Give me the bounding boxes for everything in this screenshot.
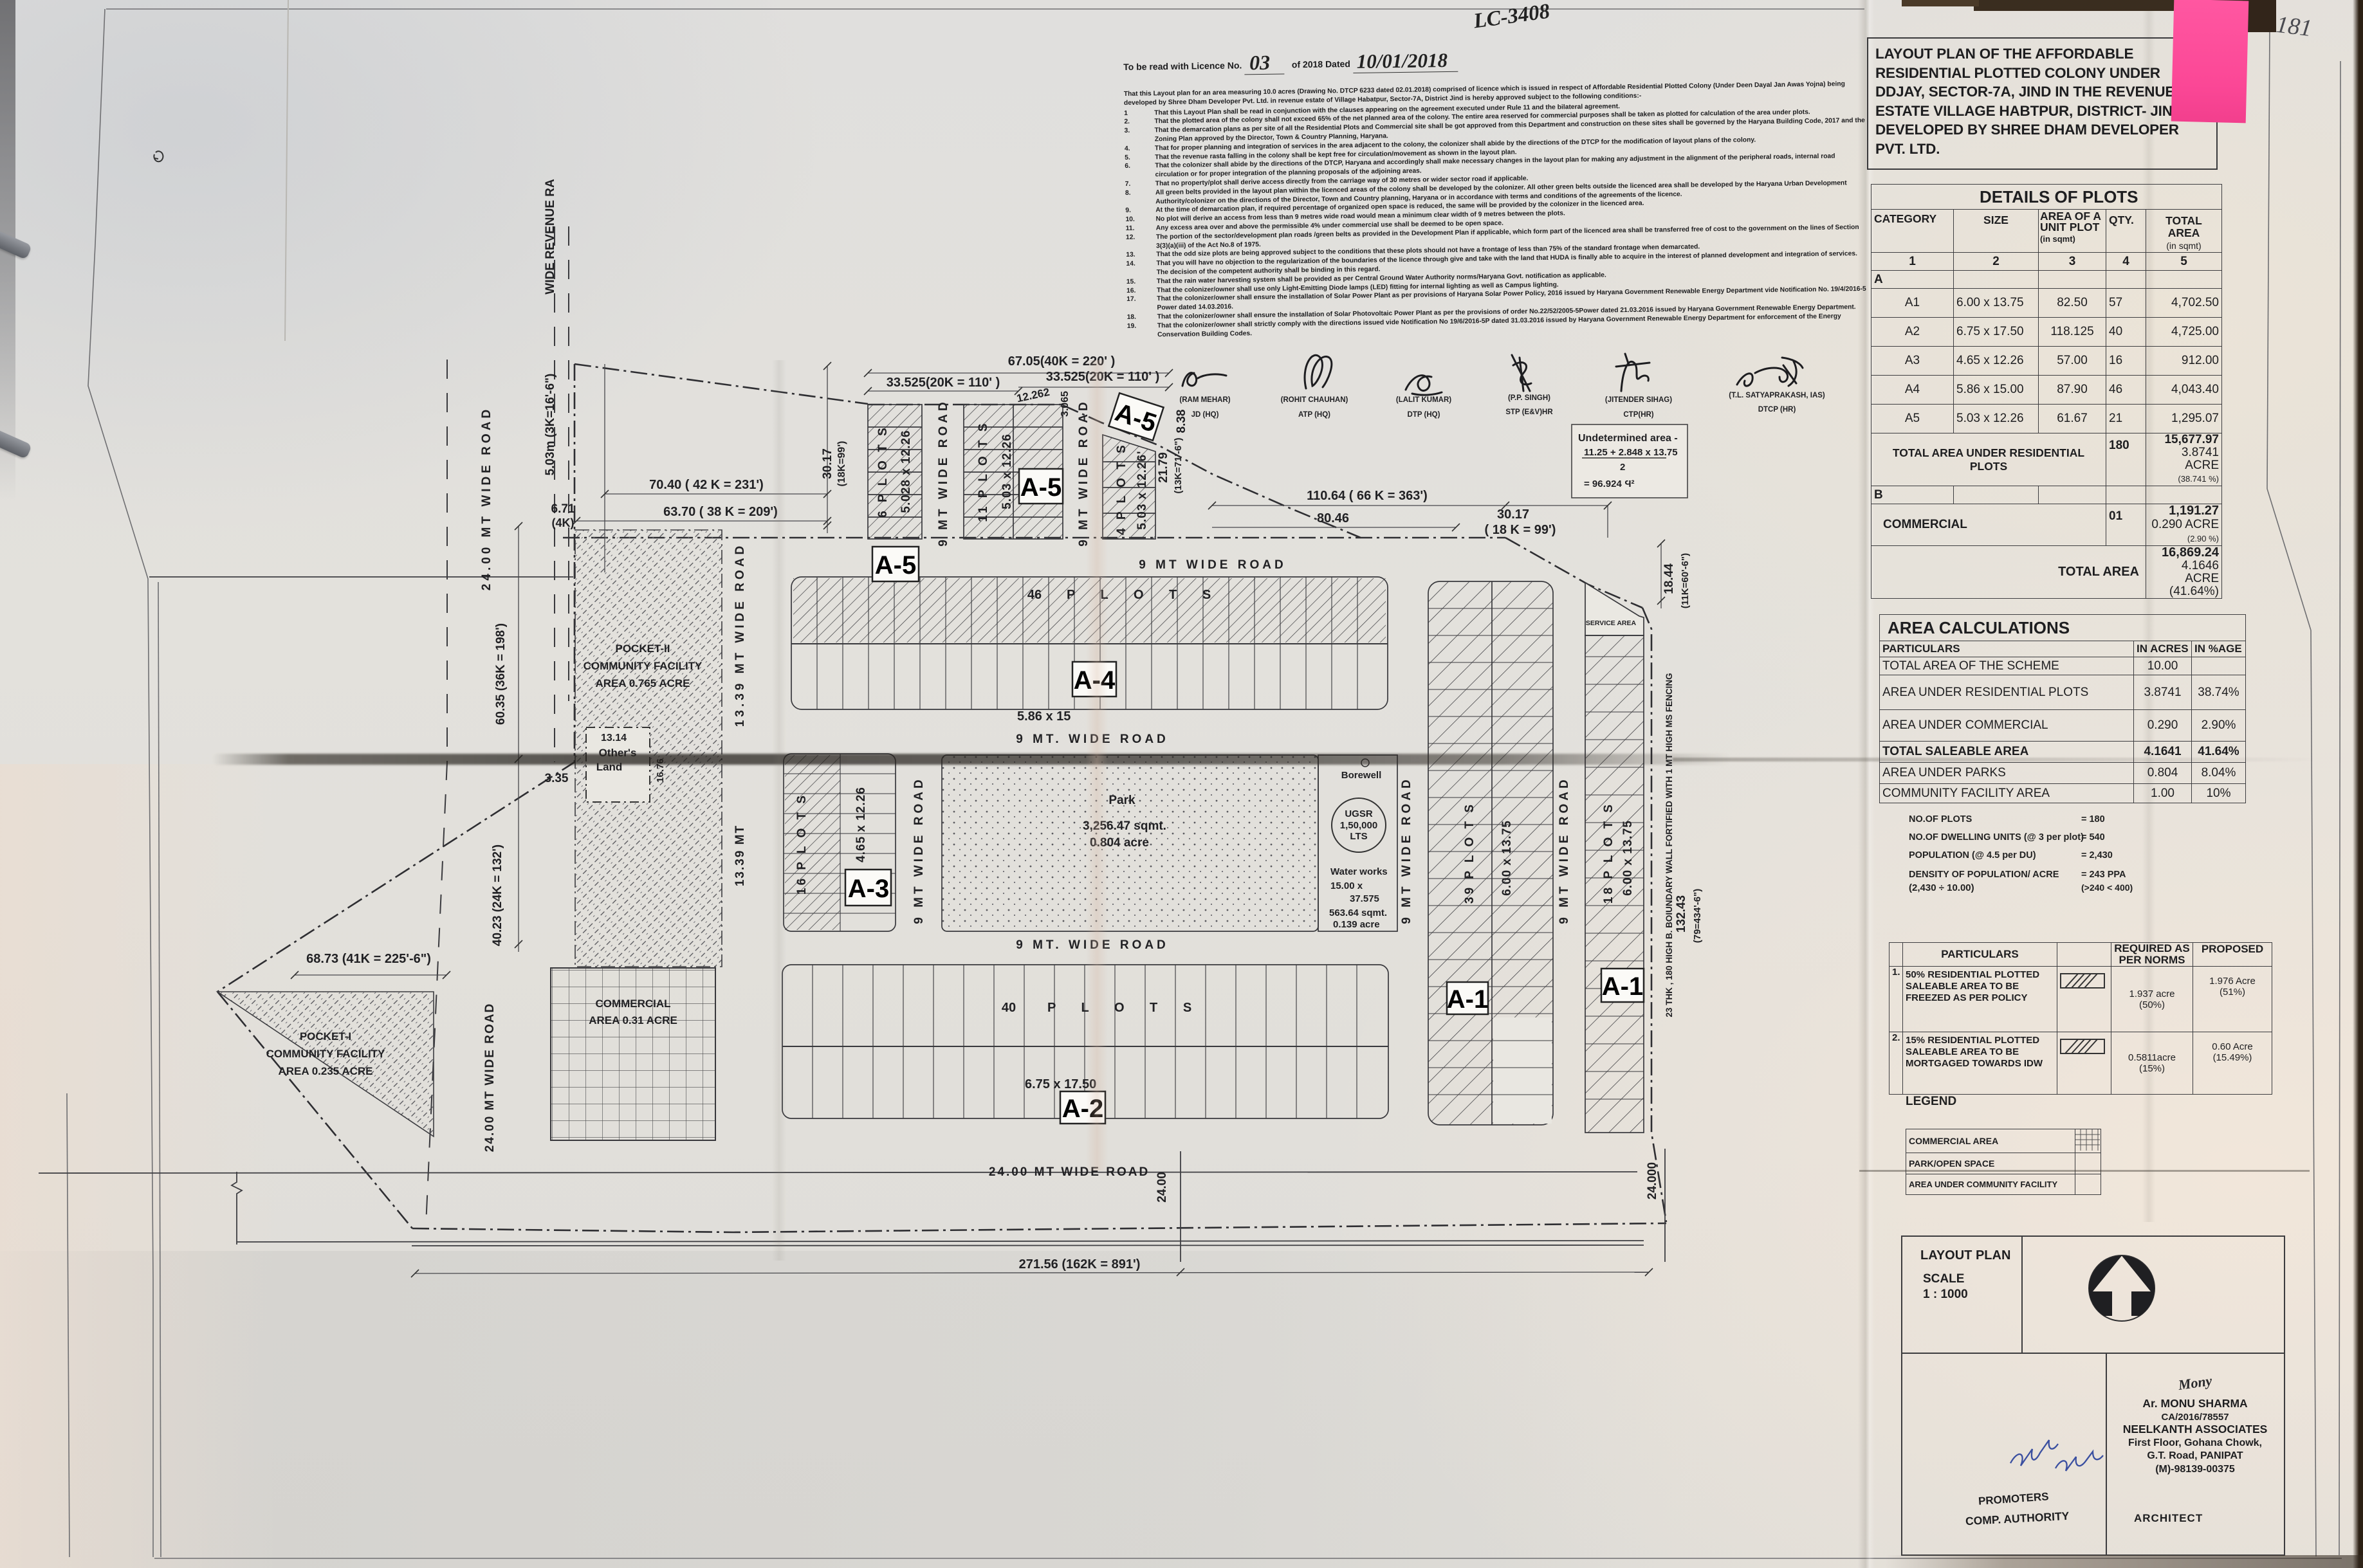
svg-text:CTP(HR): CTP(HR)	[1623, 411, 1653, 419]
svg-text:6.71: 6.71	[551, 502, 575, 516]
svg-text:9 MT WIDE ROAD: 9 MT WIDE ROAD	[1139, 558, 1286, 572]
svg-text:5.86 x 15: 5.86 x 15	[1017, 709, 1071, 724]
svg-text:(11K=60'-6"): (11K=60'-6")	[1680, 553, 1691, 608]
svg-text:POCKET-I: POCKET-I	[300, 1030, 351, 1043]
svg-text:6.00 x 13.75: 6.00 x 13.75	[1500, 820, 1514, 896]
svg-text:21.79: 21.79	[1157, 452, 1170, 483]
svg-text:6 P L O T S: 6 P L O T S	[876, 425, 890, 518]
svg-text:3.35: 3.35	[545, 772, 569, 785]
svg-text:(4K): (4K)	[552, 516, 575, 529]
svg-text:9 MT WIDE ROAD: 9 MT WIDE ROAD	[1400, 776, 1413, 924]
svg-text:STP (E&V)HR: STP (E&V)HR	[1505, 408, 1553, 416]
svg-text:24.00: 24.00	[1155, 1172, 1169, 1203]
svg-text:24.00 MT WIDE ROAD: 24.00 MT WIDE ROAD	[480, 406, 493, 590]
svg-text:2: 2	[1620, 462, 1625, 473]
svg-text:39 P L O T S: 39 P L O T S	[1463, 802, 1476, 904]
svg-text:4 P L O T S: 4 P L O T S	[1115, 442, 1128, 535]
svg-text:POCKET-II: POCKET-II	[615, 643, 670, 655]
svg-text:COMMUNITY FACILITY: COMMUNITY FACILITY	[266, 1048, 385, 1060]
svg-text:A-5: A-5	[875, 551, 916, 579]
svg-text:9 MT WIDE ROAD: 9 MT WIDE ROAD	[937, 399, 950, 546]
svg-text:Water works: Water works	[1330, 866, 1388, 877]
svg-text:5.03m (3K=16'-6"): 5.03m (3K=16'-6")	[544, 374, 557, 476]
svg-text:DTP (HQ): DTP (HQ)	[1408, 411, 1440, 419]
svg-text:24.000: 24.000	[1646, 1162, 1659, 1199]
svg-text:LTS: LTS	[1350, 831, 1367, 842]
svg-text:9 MT WIDE ROAD: 9 MT WIDE ROAD	[912, 776, 926, 924]
svg-text:11.25 + 2.848 x 13.75: 11.25 + 2.848 x 13.75	[1584, 447, 1678, 458]
svg-text:(RAM MEHAR): (RAM MEHAR)	[1179, 396, 1230, 404]
svg-text:Park: Park	[1108, 794, 1136, 807]
svg-text:13.39 MT: 13.39 MT	[733, 825, 747, 886]
svg-text:UGSR: UGSR	[1345, 808, 1373, 819]
svg-text:24.00 MT WIDE ROAD: 24.00 MT WIDE ROAD	[989, 1165, 1150, 1179]
svg-text:271.56 (162K = 891'): 271.56 (162K = 891')	[1019, 1257, 1141, 1272]
svg-text:8.38: 8.38	[1175, 410, 1188, 433]
svg-text:33.525(20K = 110' ): 33.525(20K = 110' )	[887, 376, 1000, 390]
svg-text:4.65 x 12.26: 4.65 x 12.26	[854, 787, 868, 862]
svg-text:5.03 x 12.26: 5.03 x 12.26	[1000, 433, 1014, 509]
svg-text:11 P L O T S: 11 P L O T S	[977, 421, 990, 522]
svg-text:23 THK , 180 HIGH B. BOIUNDARY: 23 THK , 180 HIGH B. BOIUNDARY WALL FORT…	[1664, 673, 1674, 1017]
svg-text:WIDE REVENUE RA: WIDE REVENUE RA	[544, 179, 557, 295]
svg-text:132.43: 132.43	[1675, 895, 1688, 933]
svg-text:COMMUNITY FACILITY: COMMUNITY FACILITY	[584, 660, 703, 672]
svg-text:3.065: 3.065	[1060, 391, 1071, 417]
svg-text:60.35 (36K = 198'): 60.35 (36K = 198')	[494, 623, 508, 725]
svg-text:63.70 ( 38 K = 209'): 63.70 ( 38 K = 209')	[663, 505, 778, 519]
svg-text:A-3: A-3	[848, 875, 889, 903]
svg-text:40.23 (24K = 132'): 40.23 (24K = 132')	[491, 844, 504, 946]
svg-text:(T.L. SATYAPRAKASH, IAS): (T.L. SATYAPRAKASH, IAS)	[1729, 392, 1825, 399]
svg-text:80.46: 80.46	[1317, 511, 1349, 525]
svg-text:Undetermined area -: Undetermined area -	[1578, 433, 1678, 444]
svg-text:13.14: 13.14	[601, 733, 627, 743]
svg-text:A-5: A-5	[1020, 473, 1062, 502]
svg-text:70.40 ( 42 K = 231'): 70.40 ( 42 K = 231')	[649, 478, 764, 492]
svg-text:5.03 x 12.26': 5.03 x 12.26'	[1136, 450, 1149, 529]
svg-text:ATP (HQ): ATP (HQ)	[1298, 411, 1330, 419]
svg-text:(79=434'-6"): (79=434'-6")	[1692, 889, 1703, 943]
svg-text:6.00 x 13.75: 6.00 x 13.75	[1621, 820, 1635, 896]
svg-text:16 P L O T S: 16 P L O T S	[795, 793, 809, 895]
svg-text:A-1: A-1	[1447, 985, 1488, 1014]
svg-text:( 18 K = 99'): ( 18 K = 99')	[1485, 523, 1556, 537]
svg-text:(LALIT KUMAR): (LALIT KUMAR)	[1396, 396, 1451, 404]
svg-text:COMMERCIAL: COMMERCIAL	[595, 998, 670, 1010]
svg-text:18 P L O T S: 18 P L O T S	[1602, 802, 1615, 904]
svg-text:0.139 acre: 0.139 acre	[1333, 919, 1380, 930]
svg-text:(18K=99'): (18K=99')	[836, 441, 847, 487]
svg-text:JD (HQ): JD (HQ)	[1191, 411, 1219, 419]
svg-text:37.575: 37.575	[1350, 893, 1379, 904]
svg-text:AREA 0.235 ACRE: AREA 0.235 ACRE	[278, 1065, 372, 1077]
svg-text:13.39 MT WIDE ROAD: 13.39 MT WIDE ROAD	[733, 543, 747, 727]
svg-text:(JITENDER SIHAG): (JITENDER SIHAG)	[1605, 396, 1672, 404]
svg-text:= 96.924 Ϥ²: = 96.924 Ϥ²	[1584, 479, 1635, 489]
svg-text:15.00 x: 15.00 x	[1330, 880, 1363, 891]
svg-text:(ROHIT CHAUHAN): (ROHIT CHAUHAN)	[1281, 396, 1348, 404]
svg-text:(13K=71'-6"): (13K=71'-6")	[1173, 438, 1184, 494]
svg-text:18.44: 18.44	[1662, 563, 1676, 594]
svg-text:9 MT WIDE ROAD: 9 MT WIDE ROAD	[1558, 776, 1571, 924]
svg-text:5.028 x 12.26: 5.028 x 12.26	[899, 430, 913, 513]
svg-text:46: 46	[1027, 588, 1042, 602]
svg-text:110.64 ( 66 K = 363'): 110.64 ( 66 K = 363')	[1307, 489, 1428, 503]
svg-text:Borewell: Borewell	[1341, 770, 1382, 781]
svg-text:Mony: Mony	[2176, 1372, 2213, 1393]
svg-text:30.17: 30.17	[1497, 507, 1529, 522]
svg-text:40: 40	[1002, 1001, 1016, 1015]
svg-text:SERVICE AREA: SERVICE AREA	[1586, 619, 1637, 627]
svg-text:1,50,000: 1,50,000	[1340, 820, 1377, 831]
svg-text:30.17: 30.17	[821, 448, 834, 479]
svg-text:68.73 (41K = 225'-6"): 68.73 (41K = 225'-6")	[306, 952, 431, 966]
svg-text:563.64 sqmt.: 563.64 sqmt.	[1329, 907, 1387, 918]
svg-text:AREA 0.765 ACRE: AREA 0.765 ACRE	[595, 677, 690, 689]
svg-text:DTCP (HR): DTCP (HR)	[1758, 406, 1796, 414]
svg-text:P L O T S: P L O T S	[1047, 1001, 1202, 1015]
svg-text:A-1: A-1	[1602, 972, 1643, 1001]
svg-text:(P.P. SINGH): (P.P. SINGH)	[1508, 394, 1550, 402]
svg-text:24.00 MT WIDE ROAD: 24.00 MT WIDE ROAD	[483, 1003, 497, 1152]
svg-text:AREA 0.31 ACRE: AREA 0.31 ACRE	[589, 1014, 677, 1026]
